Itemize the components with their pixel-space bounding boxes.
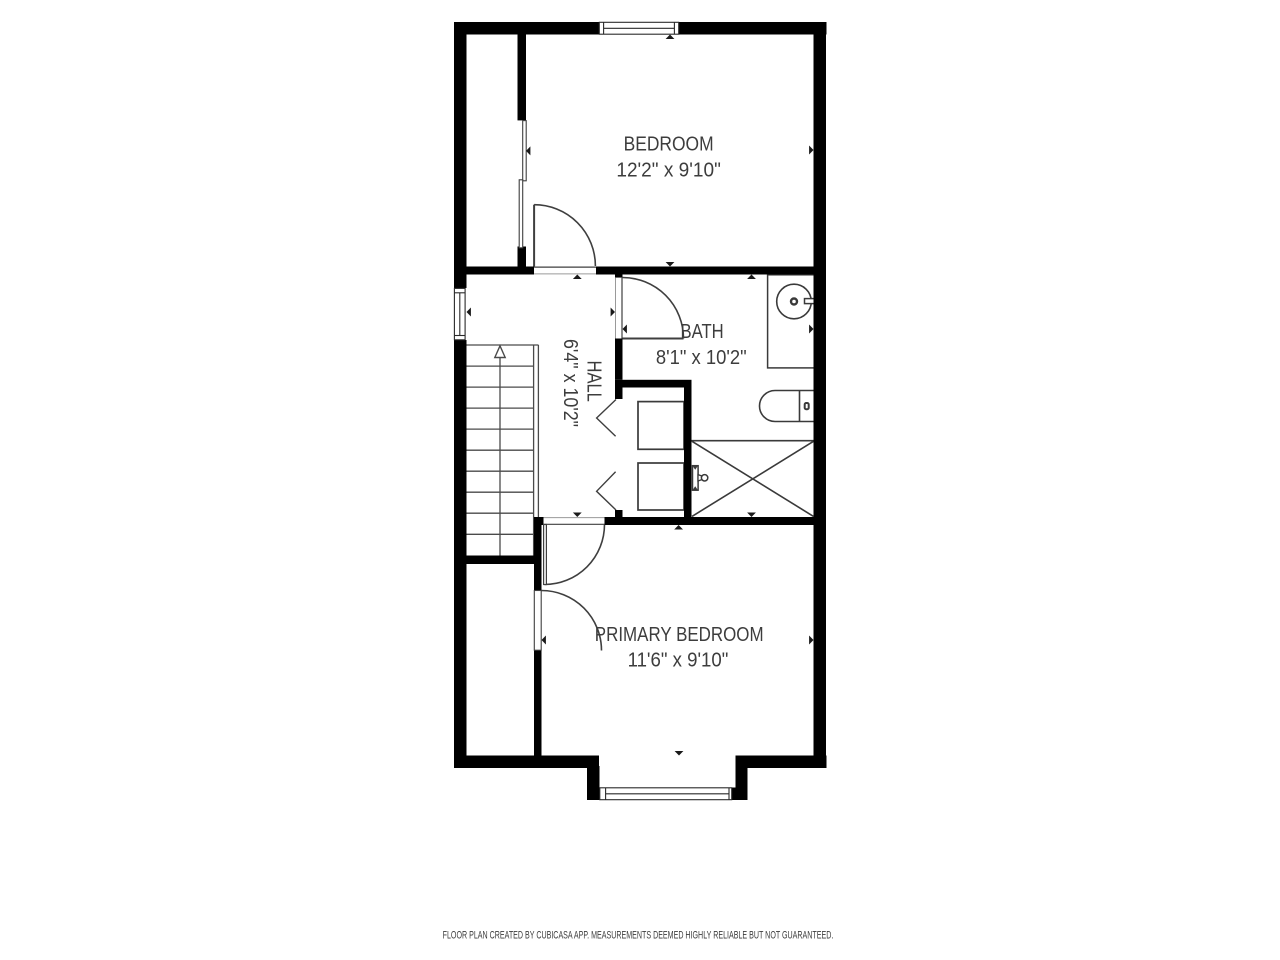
svg-text:HALL: HALL: [583, 361, 606, 402]
svg-text:FLOOR PLAN CREATED BY CUBICASA: FLOOR PLAN CREATED BY CUBICASA APP. MEAS…: [443, 930, 834, 942]
svg-text:BEDROOM: BEDROOM: [624, 133, 714, 156]
svg-text:11'6" x 9'10": 11'6" x 9'10": [628, 649, 729, 672]
svg-text:6'4" x 10'2": 6'4" x 10'2": [559, 339, 582, 427]
svg-text:BATH: BATH: [681, 320, 724, 343]
svg-text:12'2" x 9'10": 12'2" x 9'10": [616, 158, 721, 181]
svg-text:PRIMARY BEDROOM: PRIMARY BEDROOM: [595, 623, 764, 646]
svg-text:8'1" x 10'2": 8'1" x 10'2": [656, 346, 747, 369]
